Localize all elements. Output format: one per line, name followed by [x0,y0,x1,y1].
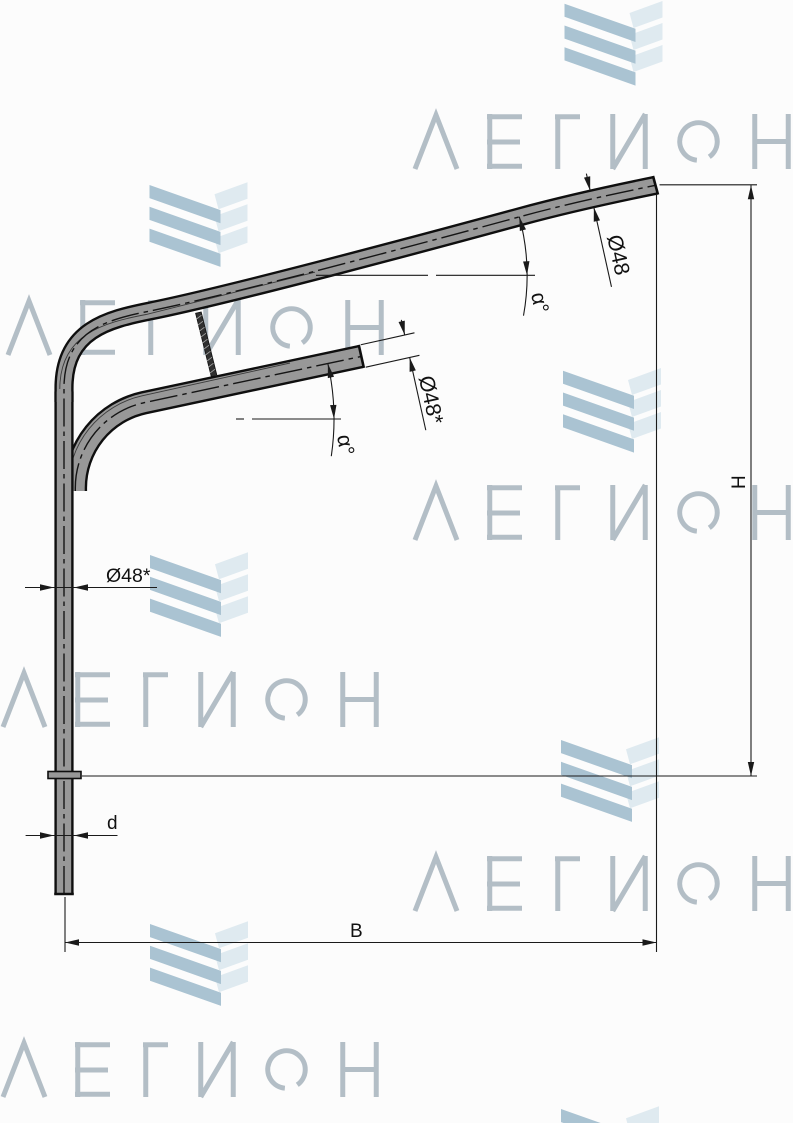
svg-text:H: H [729,475,750,489]
svg-text:α°: α° [332,433,358,457]
svg-text:B: B [350,921,363,942]
svg-text:Ø48*: Ø48* [106,565,151,587]
svg-text:d: d [107,813,118,834]
